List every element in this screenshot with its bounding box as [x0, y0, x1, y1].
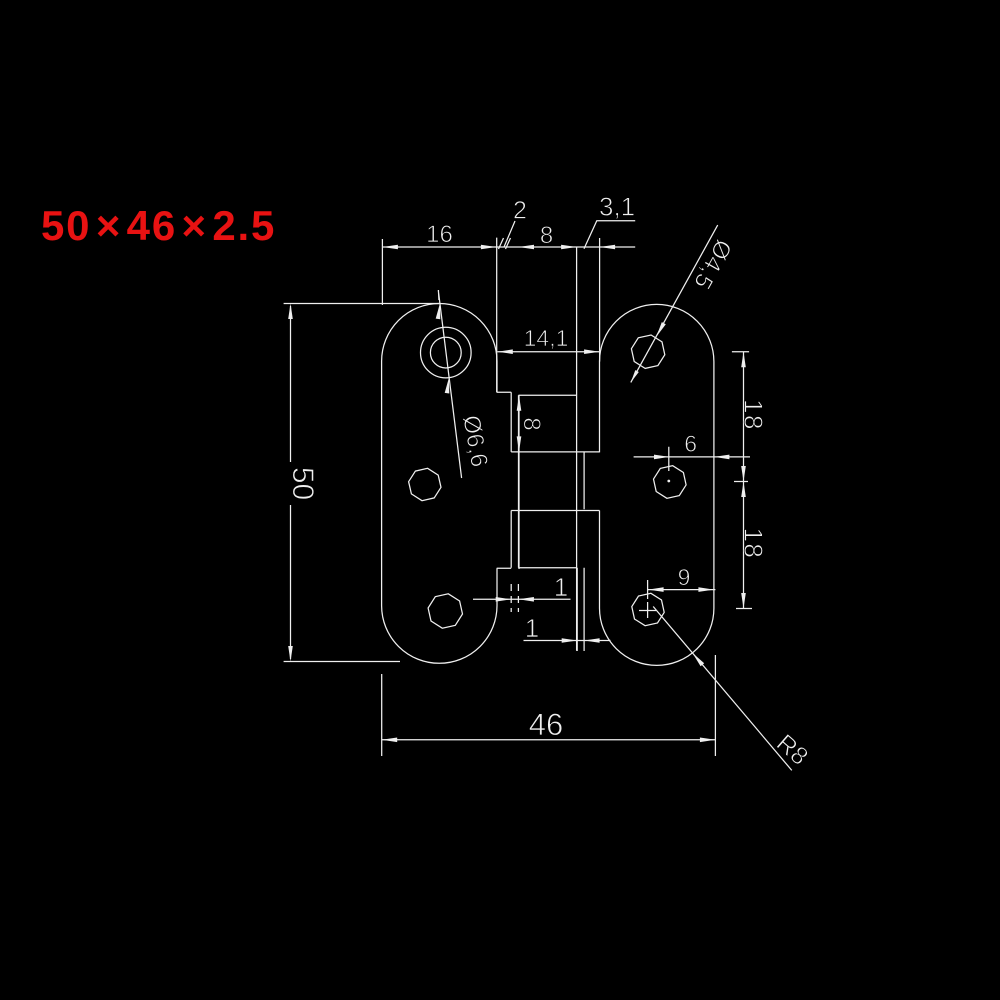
svg-text:1: 1	[525, 613, 539, 643]
svg-text:46: 46	[529, 707, 563, 742]
svg-text:50: 50	[286, 467, 319, 500]
svg-text:2: 2	[513, 197, 527, 225]
svg-text:14,1: 14,1	[524, 325, 569, 351]
svg-text:18: 18	[739, 399, 769, 431]
svg-text:8: 8	[518, 417, 545, 430]
svg-text:16: 16	[426, 221, 453, 248]
svg-text:8: 8	[540, 222, 553, 249]
svg-text:18: 18	[739, 527, 769, 559]
svg-text:1: 1	[554, 572, 568, 602]
svg-text:Ø6,6: Ø6,6	[457, 413, 493, 469]
svg-text:6: 6	[684, 431, 697, 457]
svg-text:R8: R8	[771, 729, 813, 771]
svg-text:3,1: 3,1	[599, 192, 635, 222]
svg-text:9: 9	[678, 564, 691, 590]
